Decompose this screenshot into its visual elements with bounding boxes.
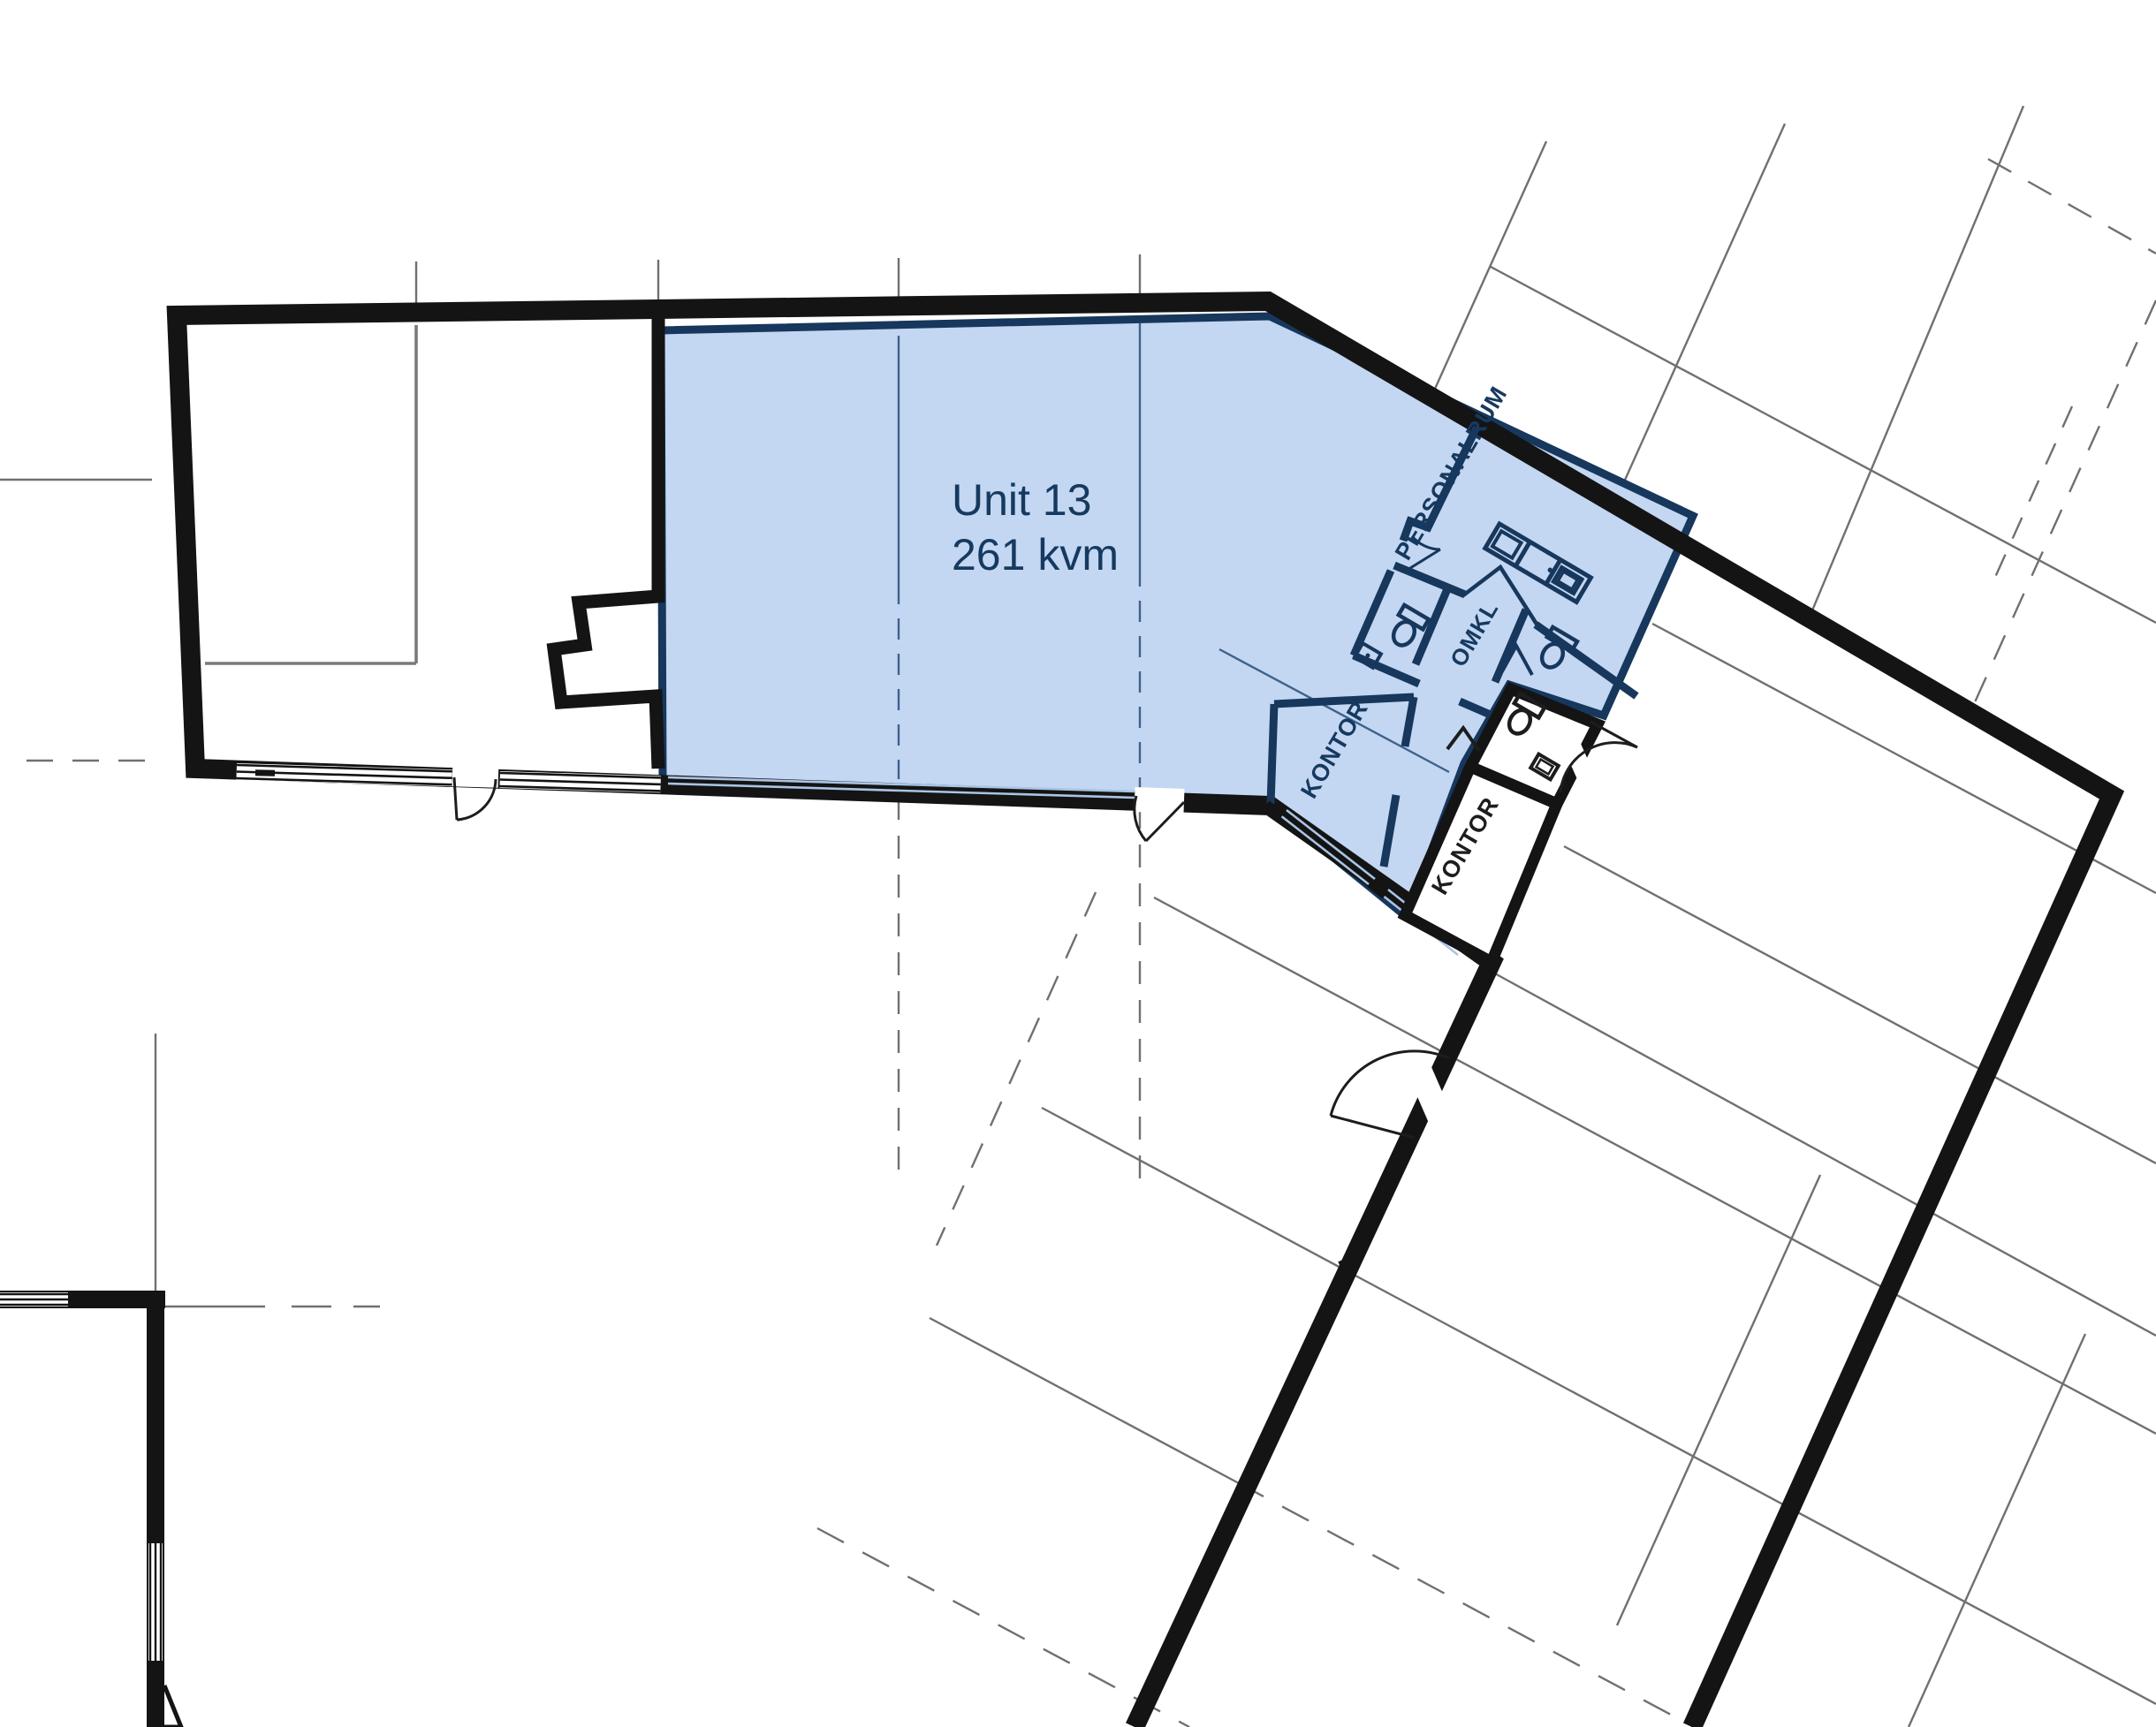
- door-opening: [452, 761, 499, 788]
- window: [148, 1543, 163, 1661]
- unit-name-label: Unit 13: [952, 475, 1091, 525]
- floor-plan-page: Unit 13 261 kvm PERSONALRUM OMKL KONTOR …: [0, 0, 2156, 1727]
- unit-area-label: 261 kvm: [952, 530, 1119, 579]
- window: [0, 1292, 68, 1307]
- floor-plan-drawing: Unit 13 261 kvm PERSONALRUM OMKL KONTOR …: [0, 0, 2156, 1727]
